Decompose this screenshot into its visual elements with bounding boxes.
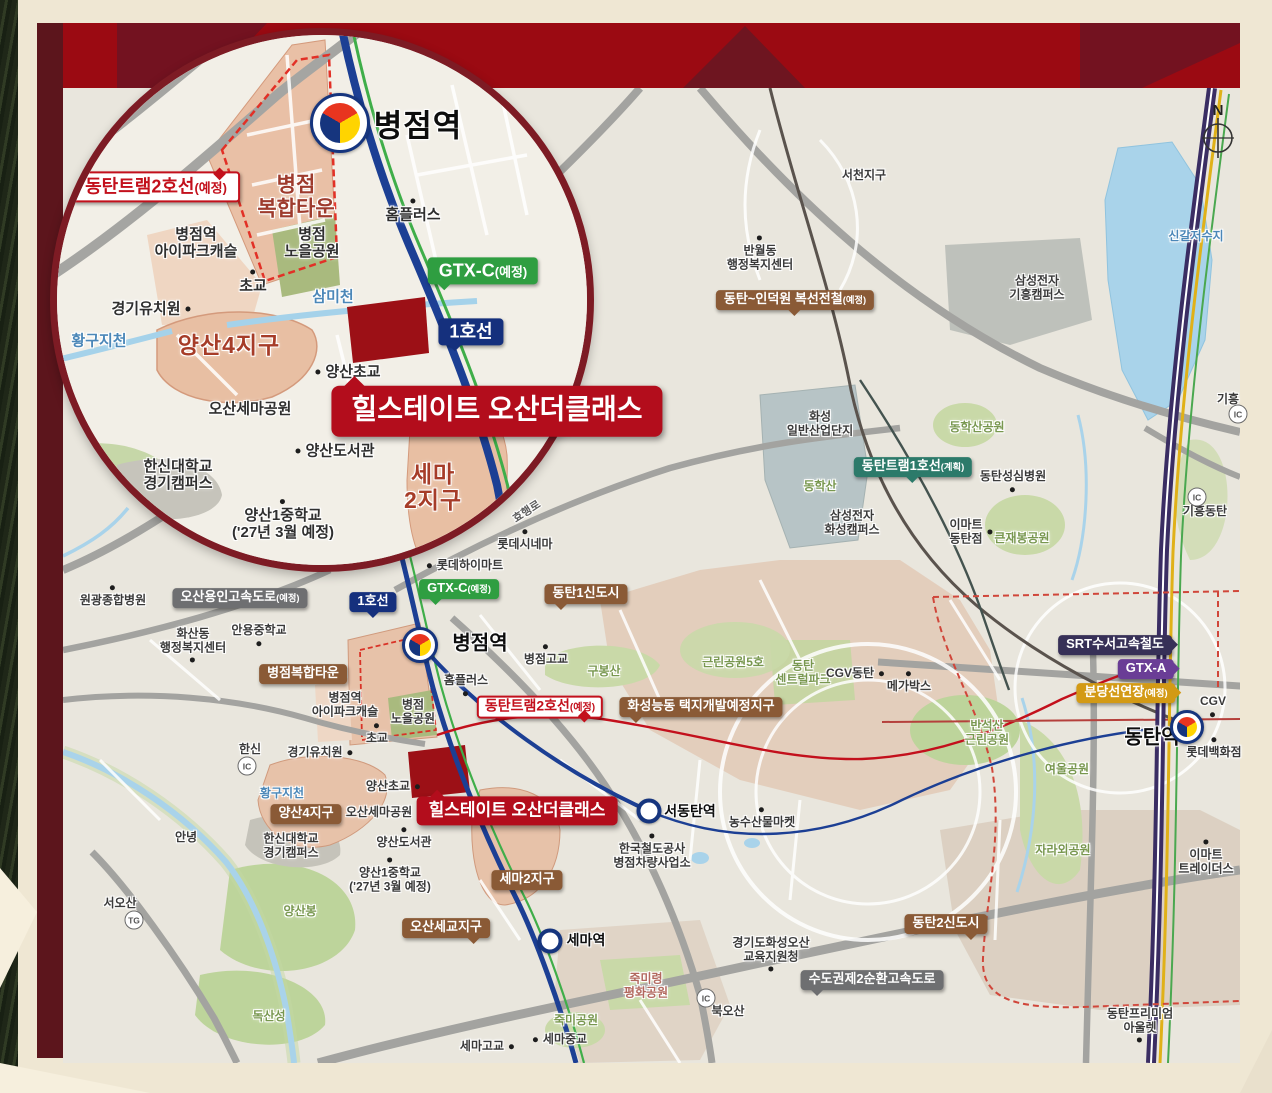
line1-badge-inset: 1호선 bbox=[438, 318, 503, 345]
tg-seoosan: TG bbox=[125, 911, 144, 930]
park-jukmi: 죽미공원 bbox=[554, 1014, 598, 1028]
poi-dot bbox=[295, 449, 300, 454]
poi-dot bbox=[509, 1044, 514, 1049]
place-chogyo: 초교 bbox=[366, 732, 388, 746]
ic-bukosan: IC bbox=[697, 989, 716, 1008]
place-namsuwon-inset: 남수원 체력단련장 bbox=[71, 526, 124, 552]
poi-dot bbox=[759, 807, 764, 812]
place-anyong-middle: 안용중학교 bbox=[231, 624, 286, 638]
poi-dot bbox=[401, 827, 406, 832]
place-homeplus: 홈플러스 bbox=[444, 674, 488, 688]
place-sema-high: 세마고교 bbox=[460, 1040, 504, 1054]
poi-dot bbox=[387, 857, 392, 862]
ic-giheung-dongtan: IC bbox=[1188, 488, 1207, 507]
poi-dot bbox=[543, 644, 548, 649]
park-neighborhood5: 근린공원5호 bbox=[702, 656, 764, 670]
place-emart-traders: 이마트 트레이더스 bbox=[1178, 848, 1233, 875]
project-callout-main: 힐스테이트 오산더클래스 bbox=[417, 796, 618, 825]
park-donghaksan: 동학산 bbox=[803, 480, 836, 494]
gtxc-badge: GTX-C(예정) bbox=[419, 579, 499, 599]
byeongjeom-station-symbol bbox=[402, 627, 438, 663]
poi-dot bbox=[879, 671, 884, 676]
place-samsung-giheung: 삼성전자 기흥캠퍼스 bbox=[1009, 274, 1064, 301]
place-annyeong: 안녕 bbox=[175, 831, 197, 845]
poi-dot bbox=[415, 784, 420, 789]
place-korail-depot: 한국철도공사 병점차량사업소 bbox=[613, 842, 690, 869]
taegeuk-rail-icon bbox=[1177, 717, 1198, 738]
osan-segyo-badge: 오산세교지구 bbox=[402, 918, 490, 938]
park-banseoksan: 반석산 근린공원 bbox=[965, 719, 1009, 746]
place-cgv-dongtan: CGV동탄 bbox=[826, 667, 874, 681]
indeogwon-line-badge: 동탄~인덕원 복선전철(예정) bbox=[716, 290, 874, 310]
park-jukmiryeong: 죽미령 평화공원 bbox=[624, 972, 668, 999]
inset-label-layer: 병점역동탄트램2호선(예정)병점 복합타운병점역 아이파크캐슬병점 노을공원홈플… bbox=[57, 35, 587, 565]
label-pointer bbox=[1167, 662, 1180, 675]
place-banwol-center: 반월동 행정복지센터 bbox=[727, 244, 793, 271]
station-label-byeongjeom: 병점역 bbox=[452, 633, 507, 656]
district-sema2-inset: 세마 2지구 bbox=[404, 461, 462, 513]
park-donghaksan-park: 동학산공원 bbox=[949, 421, 1004, 435]
place-education-office: 경기도화성오산 교육지원청 bbox=[732, 936, 809, 963]
place-hwasan-center: 화산동 행정복지센터 bbox=[160, 627, 226, 654]
place-osan-sema-park-inset: 오산세마공원 bbox=[209, 402, 292, 419]
poi-dot bbox=[256, 641, 261, 646]
place-chogyo-inset: 초교 bbox=[239, 279, 267, 296]
place-farm-market: 농수산물마켓 bbox=[729, 816, 795, 830]
byeongjeom-station-symbol-inset bbox=[310, 93, 370, 153]
place-hwaseong-industrial: 화성 일반산업단지 bbox=[787, 410, 853, 437]
water-hwangguji-inset: 황구지천 bbox=[71, 334, 126, 351]
park-yangsanbong: 양산봉 bbox=[283, 905, 316, 919]
poi-dot bbox=[463, 691, 468, 696]
park-central-park: 동탄 센트럴파크 bbox=[775, 659, 830, 686]
place-yangsan-elementary-inset: 양산초교 bbox=[325, 365, 380, 382]
water-sammicheon-inset: 삼미천 bbox=[312, 290, 353, 307]
gtxa-badge: GTX-A bbox=[1118, 659, 1174, 679]
compass-icon bbox=[1200, 118, 1236, 158]
place-dongtan-hospital: 동탄성심병원 bbox=[980, 470, 1046, 484]
place-yangsan1-middle-inset: 양산1중학교 ('27년 3월 예정) bbox=[232, 508, 334, 542]
poi-dot bbox=[186, 307, 191, 312]
place-byeongjeom-high: 병점고교 bbox=[524, 653, 568, 667]
place-hanshin-ic-label: 한신 bbox=[239, 743, 261, 757]
poi-dot bbox=[315, 370, 320, 375]
park-gubongsan: 구봉산 bbox=[587, 665, 620, 679]
poi-dot bbox=[374, 723, 379, 728]
place-bukosan: 북오산 bbox=[711, 1005, 744, 1019]
location-map-poster: N 서천지구반월동 행정복지센터동탄~인덕원 복선전철(예정)삼성전자 기흥캠퍼… bbox=[0, 0, 1272, 1093]
poi-dot bbox=[348, 750, 353, 755]
station-label-seodongtan: 서동탄역 bbox=[664, 804, 716, 820]
station-label-byeongjeom-inset: 병점역 bbox=[374, 108, 463, 143]
label-pointer bbox=[213, 167, 226, 180]
place-samsung-hwaseong: 삼성전자 화성캠퍼스 bbox=[824, 509, 879, 536]
poi-dot bbox=[410, 199, 415, 204]
poi-dot bbox=[1010, 487, 1015, 492]
label-pointer bbox=[1165, 638, 1178, 651]
poi-dot bbox=[1211, 737, 1216, 742]
line1-badge: 1호선 bbox=[349, 592, 396, 612]
gtxc-badge-inset: GTX-C(예정) bbox=[428, 257, 538, 284]
poi-dot bbox=[757, 235, 762, 240]
tram2-line-badge-inset: 동탄트램2호선(예정) bbox=[72, 171, 240, 202]
taegeuk-rail-icon bbox=[320, 103, 360, 143]
place-homeplus-inset: 홈플러스 bbox=[385, 208, 440, 225]
ring2-expressway-badge: 수도권제2순환고속도로 bbox=[801, 970, 944, 990]
inset-map: 병점역동탄트램2호선(예정)병점 복합타운병점역 아이파크캐슬병점 노을공원홈플… bbox=[50, 28, 594, 572]
district-yangsan4-inset: 양산4지구 bbox=[178, 332, 280, 358]
bundang-ext-badge: 분당선연장(예정) bbox=[1076, 683, 1175, 703]
place-yangsan-elementary: 양산초교 bbox=[366, 780, 410, 794]
place-seoosan: 서오산 bbox=[103, 897, 136, 911]
place-sema-middle: 세마중교 bbox=[543, 1033, 587, 1047]
place-noeul-park-inset: 병점 노을공원 bbox=[284, 227, 339, 261]
poi-dot bbox=[250, 270, 255, 275]
poi-dot bbox=[1137, 1038, 1142, 1043]
taegeuk-rail-icon bbox=[409, 634, 431, 656]
place-lotte-dept: 롯데백화점 bbox=[1186, 746, 1241, 760]
place-giheung-dongtan: 기흥동탄 bbox=[1183, 505, 1227, 519]
place-kindergarten: 경기유치원 bbox=[287, 746, 342, 760]
place-cgv: CGV bbox=[1200, 695, 1226, 709]
poi-dot bbox=[533, 1037, 538, 1042]
dongtan1-newtown-badge: 동탄1신도시 bbox=[544, 584, 627, 604]
place-megabox: 메가박스 bbox=[887, 680, 931, 694]
hwaseong-nungdong-badge: 화성능동 택지개발예정지구 bbox=[619, 697, 782, 717]
ic-hanshin: IC bbox=[238, 757, 257, 776]
place-hanshin-univ-inset: 한신대학교 경기캠퍼스 bbox=[143, 459, 212, 493]
poi-dot bbox=[1203, 839, 1208, 844]
tram2-line-badge: 동탄트램2호선(예정) bbox=[477, 696, 603, 719]
yangsan4-badge: 양산4지구 bbox=[270, 804, 341, 824]
place-yangsan-library-inset: 양산도서관 bbox=[305, 444, 374, 461]
poi-dot bbox=[280, 499, 285, 504]
poi-dot bbox=[988, 529, 993, 534]
place-wonkwang-hospital: 원광종합병원 bbox=[80, 594, 146, 608]
place-dongtan-premium-outlet: 동탄프리미엄 아울렛 bbox=[1107, 1007, 1173, 1034]
poi-dot bbox=[768, 967, 773, 972]
station-label-sema: 세마역 bbox=[567, 933, 606, 949]
poi-dot bbox=[1210, 712, 1215, 717]
compass-north-label: N bbox=[1200, 103, 1236, 118]
seodongtan-station-symbol bbox=[637, 799, 662, 824]
ic-giheung: IC bbox=[1229, 405, 1248, 424]
place-ipark-castle: 병점역 아이파크캐슬 bbox=[312, 691, 378, 718]
place-ipark-castle-inset: 병점역 아이파크캐슬 bbox=[155, 227, 238, 261]
place-emart-dongtan: 이마트 동탄점 bbox=[949, 518, 982, 545]
district-byeongjeom-mixed-town: 병점 복합타운 bbox=[257, 173, 334, 220]
water-singal-reservoir: 신갈저수지 bbox=[1168, 230, 1223, 244]
osan-yongin-expressway-badge: 오산용인고속도로(예정) bbox=[172, 588, 307, 608]
tram1-line-badge: 동탄트램1호선(계획) bbox=[854, 457, 972, 477]
park-yeoul: 여울공원 bbox=[1045, 763, 1089, 777]
byeongjeom-mixed-town-badge: 병점복합타운 bbox=[259, 664, 347, 684]
place-hanshin-univ: 한신대학교 경기캠퍼스 bbox=[263, 832, 318, 859]
place-kindergarten-inset: 경기유치원 bbox=[111, 302, 180, 319]
place-noeul-park: 병점 노을공원 bbox=[391, 698, 435, 725]
poi-dot bbox=[110, 585, 115, 590]
place-yangsan1-middle: 양산1중학교 ('27년 3월 예정) bbox=[349, 866, 431, 893]
park-jaraoe: 자라외공원 bbox=[1035, 844, 1090, 858]
srt-badge: SRT수서고속철도 bbox=[1058, 635, 1172, 655]
sema2-badge: 세마2지구 bbox=[491, 870, 562, 890]
poi-dot bbox=[906, 671, 911, 676]
place-seocheon-district: 서천지구 bbox=[842, 169, 886, 183]
dongtan-station-symbol bbox=[1170, 710, 1204, 744]
poi-dot bbox=[649, 833, 654, 838]
compass: N bbox=[1200, 103, 1236, 163]
place-osan-sema-park: 오산세마공원 bbox=[346, 806, 412, 820]
water-hwangguji: 황구지천 bbox=[260, 787, 304, 801]
label-pointer bbox=[1169, 686, 1182, 699]
dongtan2-newtown-badge: 동탄2신도시 bbox=[904, 914, 987, 934]
park-keunjaebong: 큰재봉공원 bbox=[994, 532, 1049, 546]
place-yangsan-library: 양산도서관 bbox=[376, 836, 431, 850]
sema-station-symbol bbox=[538, 929, 563, 954]
poi-dot bbox=[190, 658, 195, 663]
park-doksanseong: 독산성 bbox=[252, 1010, 285, 1024]
